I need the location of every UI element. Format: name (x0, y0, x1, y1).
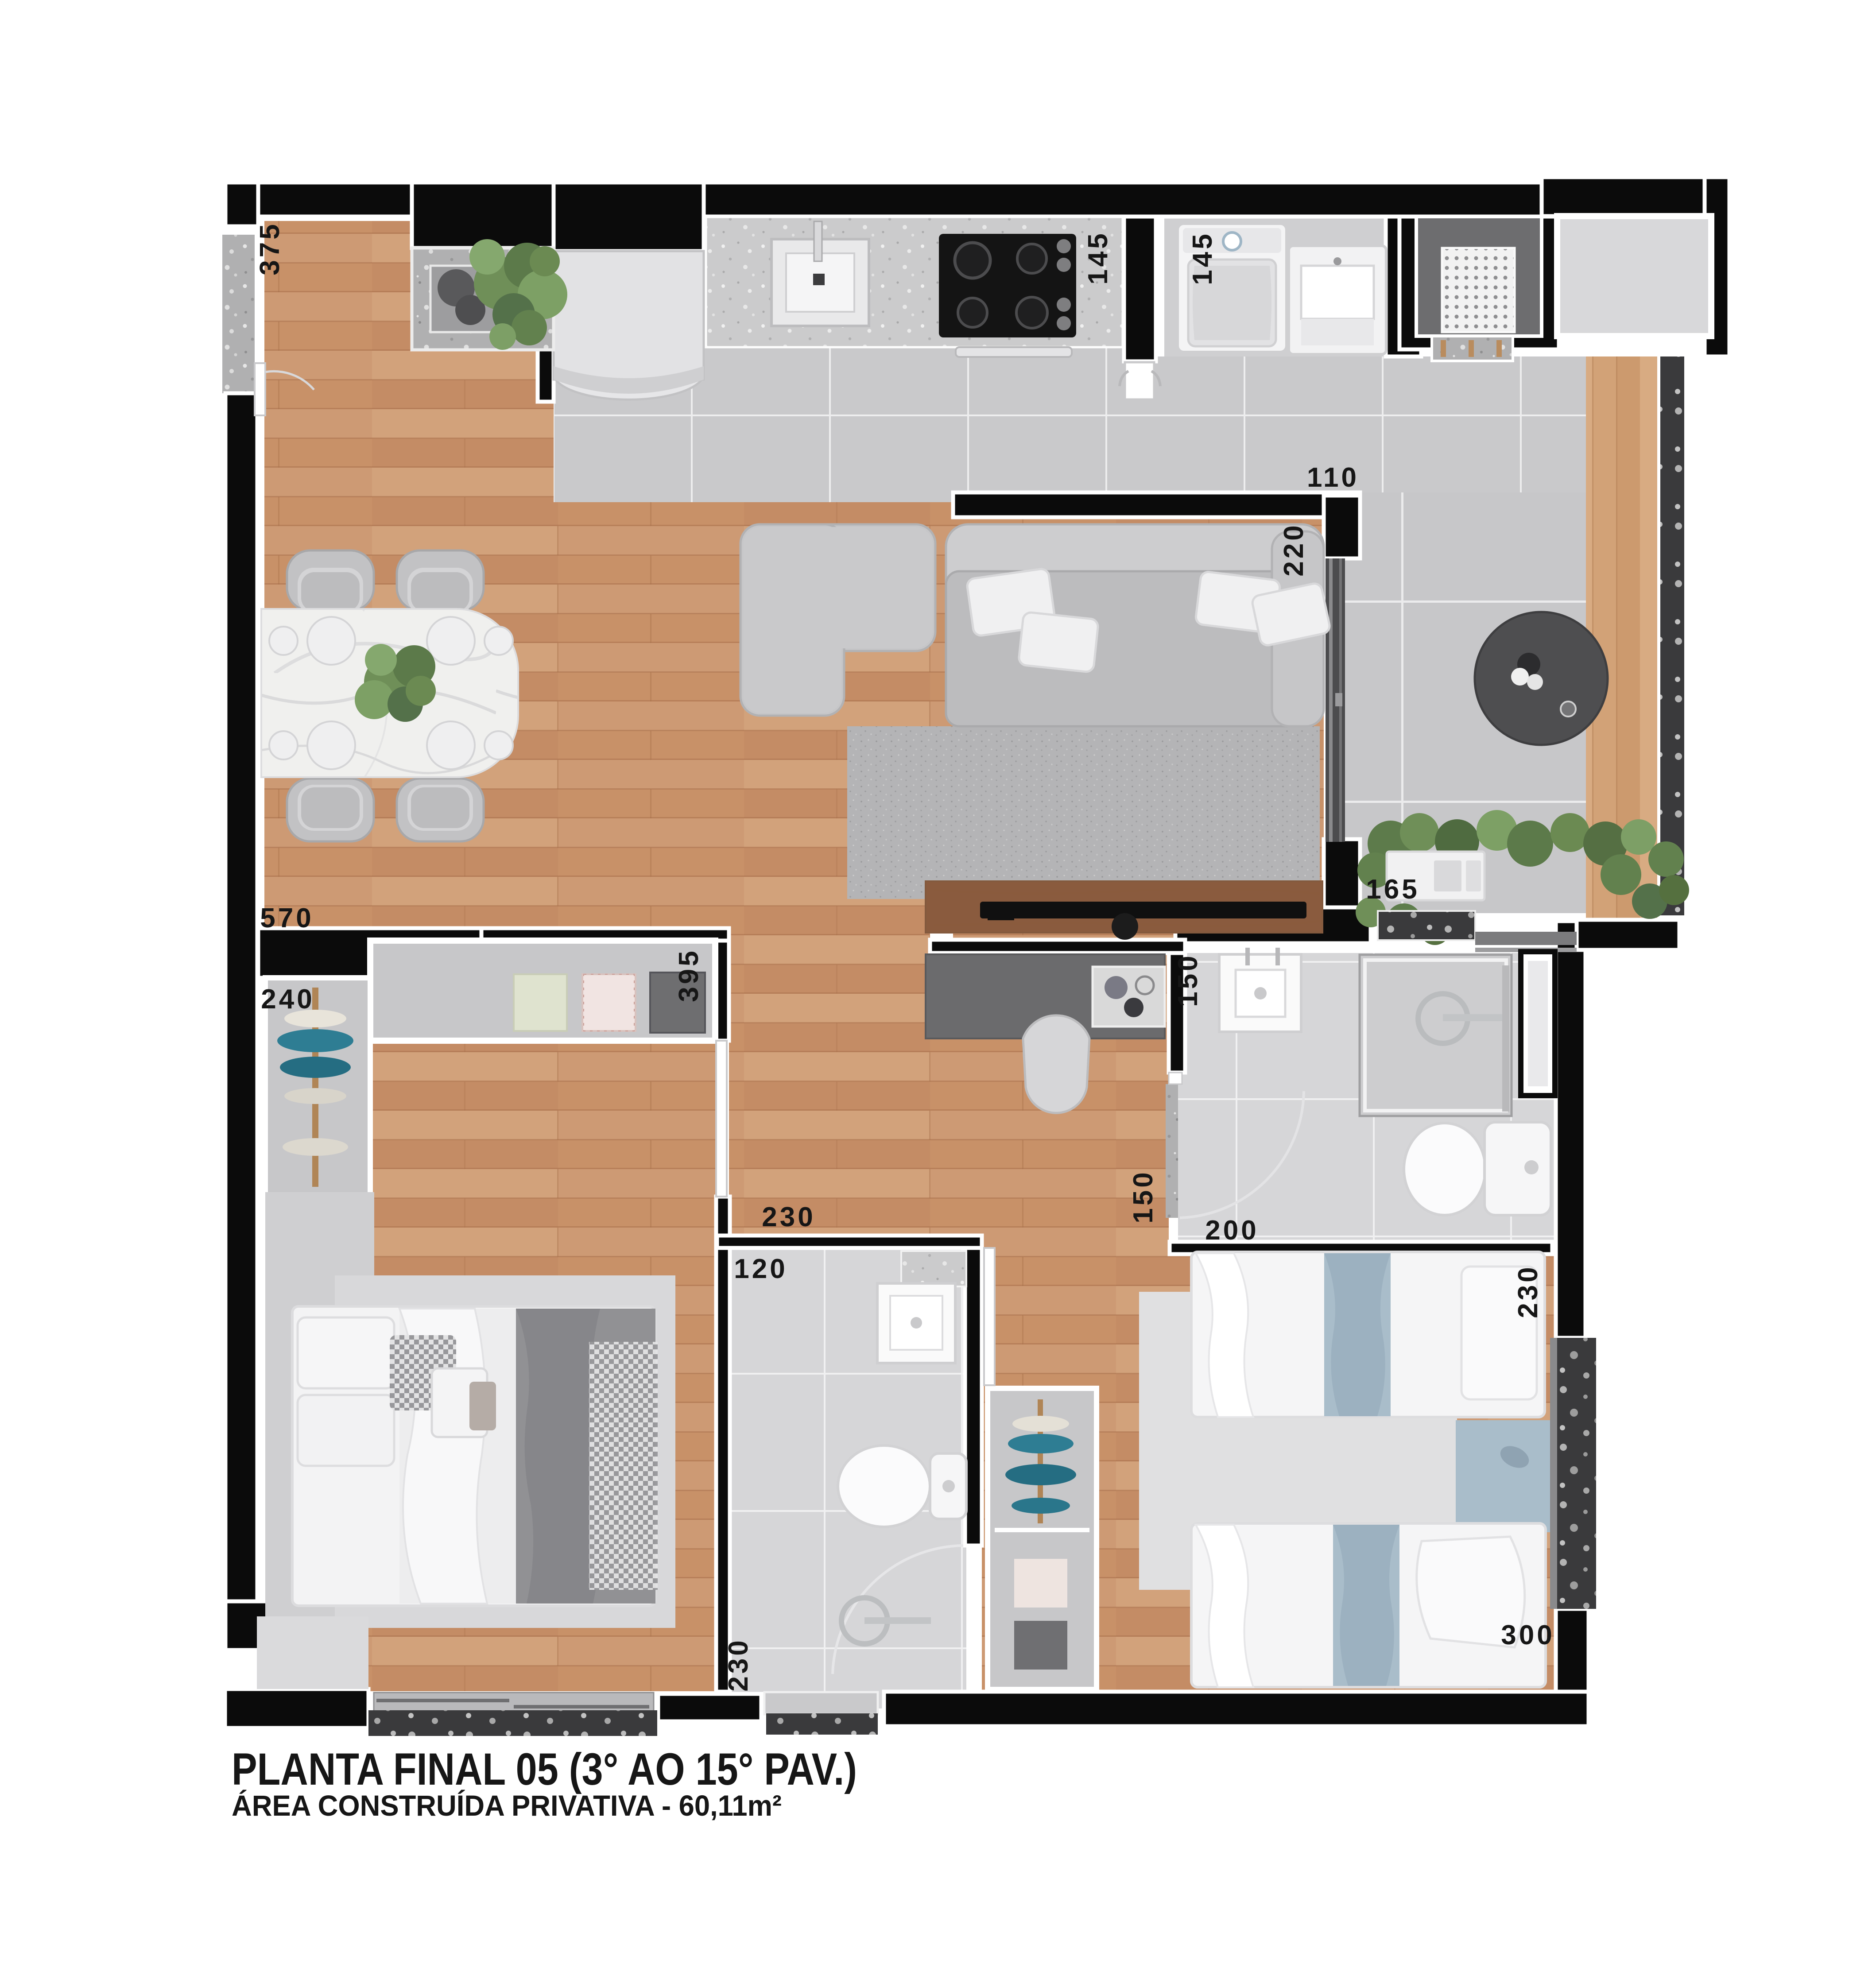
svg-text:120: 120 (734, 1254, 787, 1284)
svg-text:220: 220 (1279, 523, 1309, 576)
svg-text:395: 395 (674, 948, 704, 1002)
svg-text:145: 145 (1083, 231, 1113, 284)
svg-text:110: 110 (1307, 462, 1359, 493)
svg-text:230: 230 (723, 1638, 754, 1691)
svg-text:145: 145 (1187, 231, 1218, 285)
svg-text:150: 150 (1128, 1170, 1159, 1223)
svg-text:240: 240 (261, 984, 314, 1015)
svg-text:230: 230 (762, 1202, 815, 1232)
svg-text:375: 375 (255, 221, 285, 275)
svg-text:300: 300 (1501, 1620, 1554, 1650)
svg-text:230: 230 (1513, 1264, 1543, 1318)
svg-text:150: 150 (1173, 953, 1203, 1007)
svg-text:165: 165 (1366, 874, 1419, 905)
svg-text:200: 200 (1205, 1215, 1259, 1246)
svg-text:PLANTA FINAL 05 (3° AO 15° PAV: PLANTA FINAL 05 (3° AO 15° PAV.) (232, 1744, 857, 1794)
svg-text:570: 570 (260, 903, 314, 934)
svg-text:ÁREA CONSTRUÍDA PRIVATIVA - 60: ÁREA CONSTRUÍDA PRIVATIVA - 60,11m² (232, 1789, 782, 1822)
